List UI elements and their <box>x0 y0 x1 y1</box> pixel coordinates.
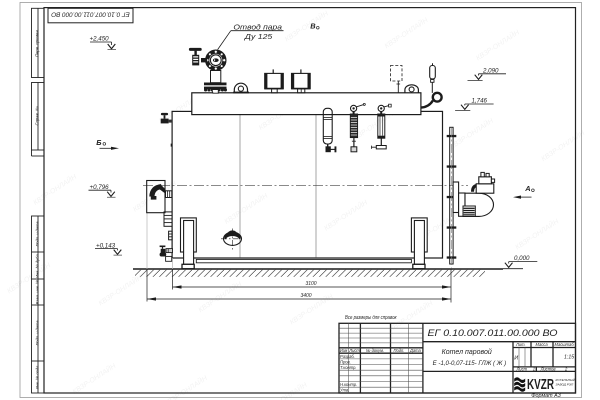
svg-text:Справ. №: Справ. № <box>34 106 39 125</box>
svg-text:И: И <box>514 356 518 362</box>
svg-text:1: 1 <box>533 367 535 372</box>
svg-text:Инв. № дубл.: Инв. № дубл. <box>34 253 39 278</box>
svg-text:Е -1,0-0,07-115- ГЛЖ ( Ж ): Е -1,0-0,07-115- ГЛЖ ( Ж ) <box>433 360 507 367</box>
svg-text:Изм: Изм <box>340 348 348 353</box>
svg-text:1:15: 1:15 <box>564 355 574 361</box>
svg-text:KVZR: KVZR <box>527 377 554 393</box>
svg-text:1,746: 1,746 <box>472 98 488 105</box>
svg-text:Взам. инв. №: Взам. инв. № <box>34 279 39 304</box>
svg-text:Все размеры для справок: Все размеры для справок <box>345 315 397 321</box>
svg-text:Пров.: Пров. <box>340 359 351 364</box>
svg-text:Перв. примен.: Перв. примен. <box>34 29 39 57</box>
svg-text:ЗАВОД РЭП: ЗАВОД РЭП <box>556 382 575 386</box>
svg-text:0,000: 0,000 <box>514 255 530 262</box>
svg-text:А: А <box>524 184 530 193</box>
svg-text:Формат А3: Формат А3 <box>531 393 561 399</box>
svg-text:3100: 3100 <box>305 281 316 287</box>
svg-text:Лист: Лист <box>516 367 528 372</box>
svg-text:В: В <box>310 22 316 31</box>
svg-text:Подп.: Подп. <box>394 348 405 353</box>
svg-text:Подп. и дата: Подп. и дата <box>34 221 39 247</box>
svg-text:Б: Б <box>96 138 101 147</box>
svg-text:Подп. и дата: Подп. и дата <box>34 320 39 346</box>
svg-text:3400: 3400 <box>300 293 311 299</box>
svg-text:Дата: Дата <box>409 348 422 353</box>
svg-text:Лист: Лист <box>348 348 360 353</box>
svg-text:Утв.: Утв. <box>340 388 349 393</box>
svg-text:+2,450: +2,450 <box>90 36 110 43</box>
svg-text:Разраб.: Разраб. <box>340 354 355 359</box>
svg-text:ЕГ 0.10.007.011.00.000 ВО: ЕГ 0.10.007.011.00.000 ВО <box>51 10 130 17</box>
svg-text:Масса: Масса <box>536 342 549 347</box>
svg-text:Отвод пара: Отвод пара <box>233 22 282 31</box>
svg-text:Инв. № подл.: Инв. № подл. <box>34 365 39 390</box>
svg-text:Листов: Листов <box>540 367 557 372</box>
svg-text:+0,796: +0,796 <box>90 184 110 191</box>
svg-text:Лит.: Лит. <box>515 342 526 347</box>
svg-text:№ докум.: № докум. <box>366 348 384 353</box>
svg-text:ЕГ 0.10.007.011.00.000 ВО: ЕГ 0.10.007.011.00.000 ВО <box>428 328 558 338</box>
svg-text:Котел паровой: Котел паровой <box>442 348 492 356</box>
svg-text:Ду 125: Ду 125 <box>244 32 274 41</box>
svg-text:КОТЕЛЬНЫЙ: КОТЕЛЬНЫЙ <box>556 378 576 382</box>
svg-text:Н.контр.: Н.контр. <box>340 382 357 387</box>
svg-text:Масштаб: Масштаб <box>555 342 575 347</box>
svg-text:Т.контр.: Т.контр. <box>340 365 357 370</box>
